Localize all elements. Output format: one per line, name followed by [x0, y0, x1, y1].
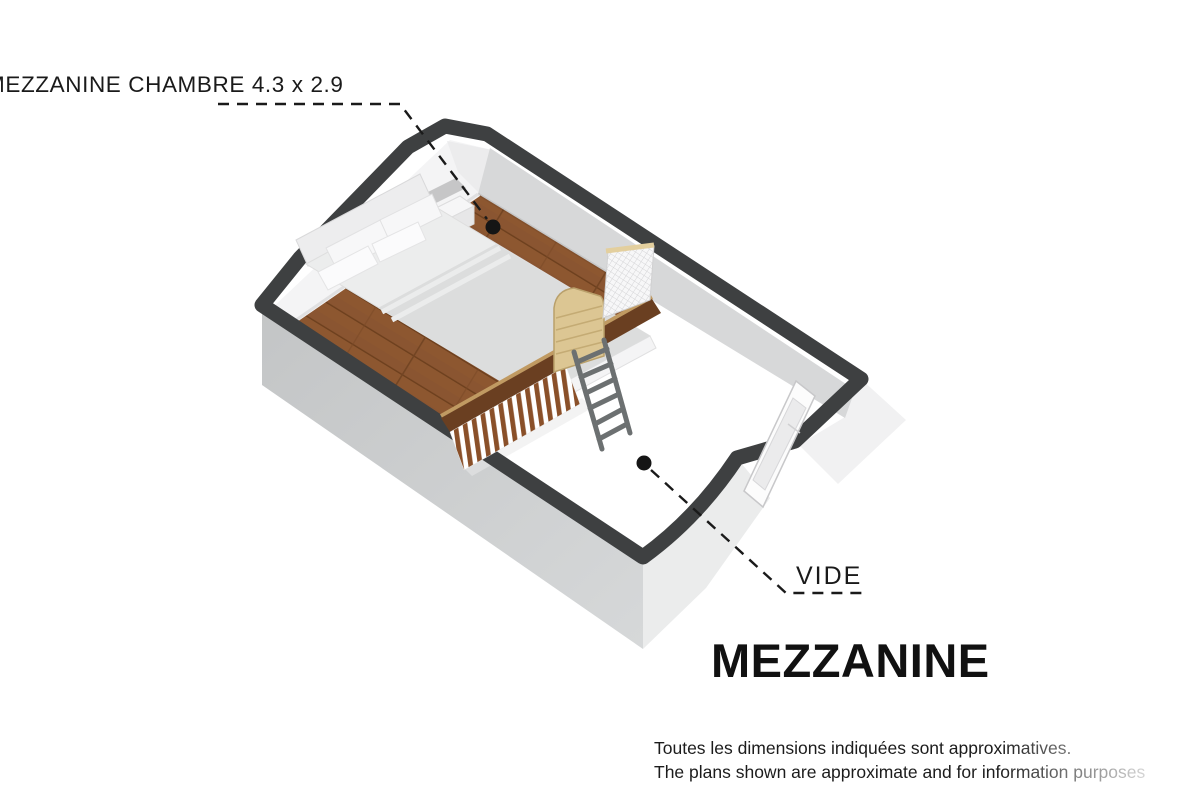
floorplan-illustration — [0, 0, 1200, 800]
disclaimer-line-fr: Toutes les dimensions indiquées sont app… — [654, 736, 1145, 760]
void-marker-dot — [637, 456, 652, 471]
floorplan-page: MEZZANINE CHAMBRE 4.3 x 2.9 VIDE MEZZANI… — [0, 0, 1200, 800]
void-label: VIDE — [796, 562, 862, 591]
disclaimer-text: Toutes les dimensions indiquées sont app… — [654, 736, 1145, 784]
disclaimer-line-en: The plans shown are approximate and for … — [654, 760, 1145, 784]
room-label: MEZZANINE CHAMBRE 4.3 x 2.9 — [0, 72, 344, 98]
page-title: MEZZANINE — [711, 633, 990, 688]
room-marker-dot — [486, 220, 501, 235]
